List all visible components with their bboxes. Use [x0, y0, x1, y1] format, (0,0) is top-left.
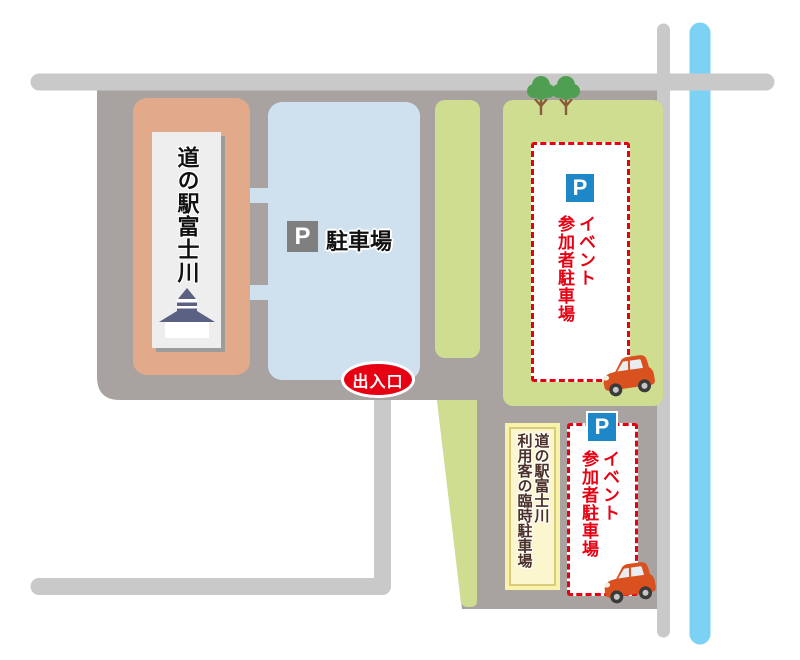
- car-icon: [600, 559, 658, 607]
- temporary-parking-text: 道の駅富士川 利用客の臨時駐車場: [516, 433, 550, 584]
- event-parking-bottom-label: イベント 参加者駐車場: [578, 450, 620, 558]
- south-road: [39, 392, 383, 587]
- p-symbol: P: [595, 414, 610, 440]
- event-parking-bottom-line1: イベント: [599, 450, 620, 558]
- station-sign-text: 道の駅富士川: [171, 146, 203, 284]
- trees-icon: [527, 74, 583, 116]
- temporary-parking-box: 道の駅富士川 利用客の臨時駐車場: [505, 423, 560, 590]
- event-parking-top-line2: 参加者駐車場: [554, 215, 575, 323]
- entrance-label: 出入口: [352, 368, 403, 392]
- event-parking-bottom-p-icon: P: [588, 413, 616, 441]
- car-icon: [599, 352, 657, 400]
- parking-p-badge: P: [287, 221, 318, 252]
- event-parking-top-p-icon: P: [566, 174, 594, 202]
- temporary-parking-line2: 利用客の臨時駐車場: [516, 433, 533, 584]
- parking-map-canvas: 道の駅富士川 P 駐車場 P イベント 参加者駐車場: [0, 0, 800, 660]
- p-symbol: P: [573, 175, 588, 201]
- event-parking-bottom-line2: 参加者駐車場: [578, 450, 599, 558]
- green-strip-south: [437, 400, 477, 607]
- entrance-badge: 出入口: [344, 364, 412, 395]
- main-parking-label: 駐車場: [326, 224, 392, 256]
- green-strip-inner: [435, 100, 480, 358]
- event-parking-top-line1: イベント: [575, 215, 596, 323]
- parking-p-symbol: P: [294, 223, 310, 251]
- station-building-icon: [153, 286, 221, 348]
- event-parking-top-label: イベント 参加者駐車場: [554, 215, 596, 323]
- temporary-parking-line1: 道の駅富士川: [533, 433, 550, 584]
